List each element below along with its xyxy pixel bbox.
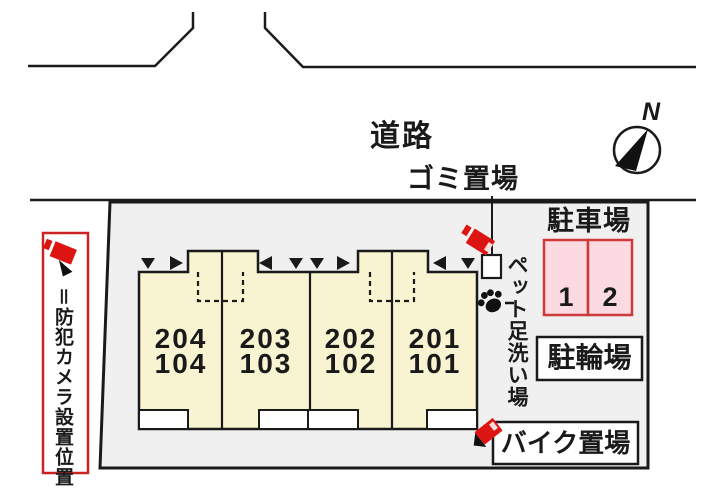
garbage-bin-box	[482, 255, 501, 278]
road-label: 道路	[370, 122, 434, 152]
unit-lower-number: 104	[136, 351, 226, 376]
unit-label-204-104: 204 104	[136, 326, 226, 376]
compass-north-label: N	[642, 100, 660, 125]
unit-label-203-103: 203 103	[221, 326, 311, 376]
road-edge-left	[28, 12, 193, 66]
pet-foot-wash-label: ペット足洗い場	[506, 254, 527, 418]
unit-lower-number: 101	[390, 351, 480, 376]
parking-lot-label: 駐車場	[543, 208, 635, 235]
bike-parking-label: バイク置場	[493, 430, 638, 456]
garbage-area-label: ゴミ置場	[407, 166, 519, 193]
road-edge-right	[265, 12, 696, 67]
unit-label-202-102: 202 102	[306, 326, 396, 376]
parking-space-1-number: 1	[544, 284, 588, 311]
compass-north-icon	[614, 127, 660, 173]
unit-lower-number: 103	[221, 351, 311, 376]
unit-label-201-101: 201 101	[390, 326, 480, 376]
site-plan: 道路 ゴミ置場 N 駐車場 1 2 駐輪場 バイク置場 ペット足洗い場 ＝防犯カ…	[0, 0, 720, 493]
site-plan-linework	[0, 0, 720, 493]
bicycle-parking-label: 駐輪場	[537, 344, 642, 372]
unit-lower-number: 102	[306, 351, 396, 376]
road-lines	[28, 12, 696, 200]
camera-legend-text: ＝防犯カメラ設置位置	[53, 287, 72, 473]
parking-space-2-number: 2	[588, 284, 632, 311]
